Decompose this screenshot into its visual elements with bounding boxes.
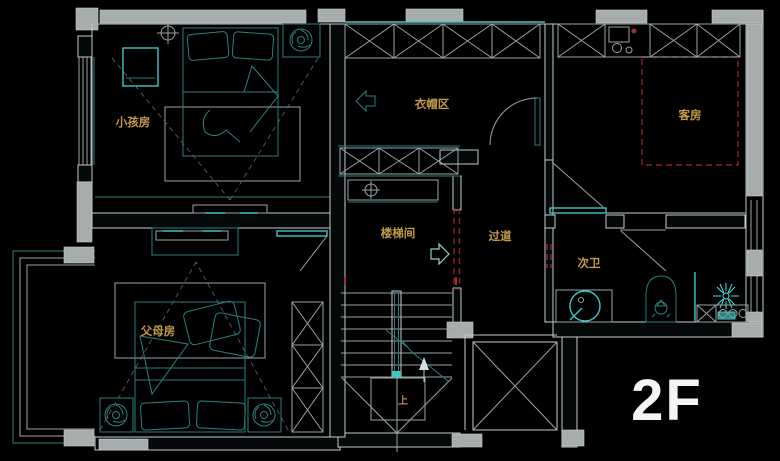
entry-arrow-left-icon [356, 91, 375, 111]
parents-door [277, 231, 327, 271]
guest-vanity-sink [609, 27, 637, 53]
sink-fitting-red [632, 29, 637, 34]
room-label-guest: 客房 [678, 108, 702, 122]
spiral-fan-icon [100, 398, 133, 432]
room-label-parents: 父母房 [140, 324, 176, 338]
room-label-kids: 小孩房 [115, 115, 151, 129]
room-label-stair: 楼梯间 [381, 226, 416, 240]
guest-wardrobe-row [558, 24, 740, 57]
spiral-fan-icon [248, 398, 281, 432]
floor-plan-canvas: 上 [0, 0, 780, 461]
kids-bed [183, 28, 278, 156]
right-window-lower [751, 276, 757, 312]
bath-door [620, 230, 666, 271]
kids-nightstand [123, 48, 158, 86]
kids-rug [165, 107, 300, 181]
toilet [646, 276, 676, 322]
void-skylight-box [465, 335, 557, 430]
bay-window [13, 247, 95, 446]
bathroom-fixtures [556, 272, 748, 322]
ceiling-fan-icon [157, 22, 179, 44]
shower-head-icon [713, 283, 739, 319]
handrail-post [392, 371, 401, 378]
floor-plan-drawing: 上 [0, 0, 780, 461]
ceiling-fan-icon [362, 181, 380, 199]
cloak-wardrobe-row [345, 22, 545, 58]
stairs-direction-label: 上 [398, 394, 408, 407]
room-label-bath: 次卫 [578, 256, 601, 270]
floor-title: 2F [631, 368, 703, 433]
spiral-fan-icon [283, 24, 320, 57]
room-label-corridor: 过道 [489, 229, 512, 243]
parents-tv-cabinet [152, 228, 238, 255]
room-label-cloak: 衣帽区 [415, 97, 450, 111]
guest-door [550, 162, 606, 213]
cloak-door [490, 98, 540, 145]
parents-bed [135, 300, 261, 432]
parents-room-furniture [100, 228, 288, 432]
bath-sink [556, 290, 612, 322]
entry-arrow-right-icon [431, 244, 449, 264]
parents-wardrobe-column [292, 302, 323, 432]
stairs: 上 [341, 291, 452, 452]
right-window-upper [751, 200, 757, 250]
kids-tv [193, 205, 267, 213]
